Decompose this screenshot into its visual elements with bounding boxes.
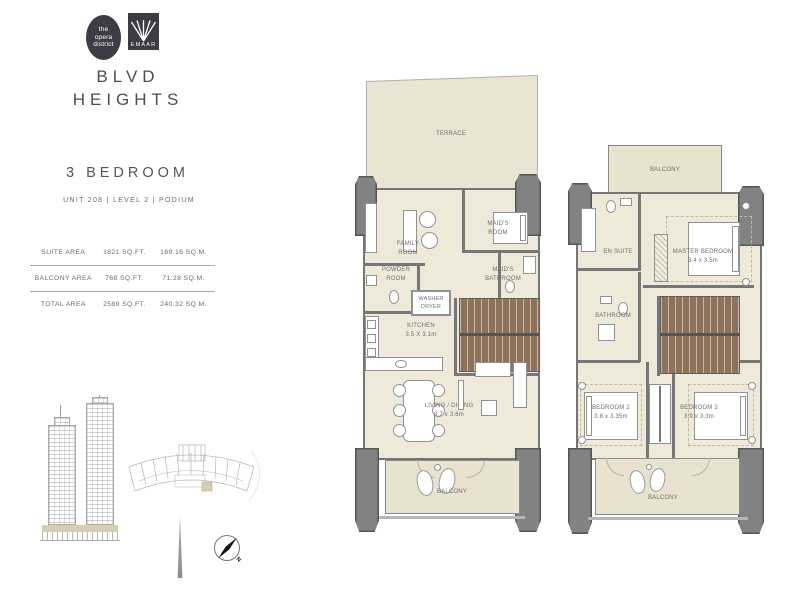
area-row-label: SUITE AREA <box>30 249 97 256</box>
en-suite-label: EN SUITE <box>590 248 646 257</box>
chair-icon <box>432 424 445 437</box>
nightstand-icon <box>742 202 750 210</box>
toilet-icon <box>606 200 616 213</box>
master-bedroom-label: MASTER BEDROOM 3.4 x 3.5m <box>672 248 734 266</box>
tower-right <box>86 403 114 525</box>
bathtub-icon <box>581 208 596 252</box>
emaar-sunburst-icon <box>130 20 157 42</box>
project-title: BLVD HEIGHTS <box>53 66 203 112</box>
balcony-bottom-label: BALCONY <box>628 494 698 503</box>
project-title-line2: HEIGHTS <box>53 89 203 112</box>
area-row-label: BALCONY AREA <box>30 275 97 282</box>
shower-icon <box>598 324 615 341</box>
wall <box>462 250 540 253</box>
area-row-sqft: 1821 SQ.FT. <box>97 249 153 256</box>
living-dining-label: LIVING / DINING 8.7 x 3.6m <box>421 402 477 420</box>
area-row-label: TOTAL AREA <box>30 301 97 308</box>
coffee-table-icon <box>481 400 497 416</box>
podium-level-highlight <box>42 525 118 532</box>
sink-icon <box>600 296 612 304</box>
chair-icon <box>432 384 445 397</box>
wardrobe-icon <box>654 234 668 282</box>
nightstand-icon <box>742 278 750 286</box>
chair-icon <box>419 211 436 228</box>
compass-icon: N <box>212 533 246 569</box>
podium-columns <box>42 532 118 540</box>
emaar-logo-label: EMAAR <box>131 42 157 48</box>
balcony-railing <box>379 516 525 519</box>
tower-left <box>48 425 76 525</box>
area-table: SUITE AREA 1821 SQ.FT. 169.16 SQ.M. BALC… <box>30 240 215 317</box>
brochure-page: the opera district EMAAR BLVD HEIGHTS 3 … <box>0 0 800 600</box>
nightstand-icon <box>748 436 756 444</box>
wall <box>643 285 754 288</box>
unit-type-heading: 3 BEDROOM <box>35 165 220 181</box>
area-row-sqm: 240.32 SQ.M. <box>152 301 215 308</box>
kitchen-label: KITCHEN 3.5 X 3.1m <box>393 322 449 340</box>
area-row-sqft: 2589 SQ.FT. <box>97 301 153 308</box>
wall <box>462 190 465 252</box>
ground-line <box>40 540 120 541</box>
unit-info-line: UNIT 208 | LEVEL 2 | PODIUM <box>35 197 223 204</box>
powder-room-label: POWDER ROOM <box>371 266 421 284</box>
antenna-line <box>60 405 61 417</box>
closet-divider <box>659 386 661 442</box>
side-table-icon <box>646 464 652 470</box>
balcony-top-label: BALCONY <box>635 166 695 175</box>
project-title-line1: BLVD <box>53 66 203 89</box>
hob-icon <box>367 334 376 343</box>
opera-logo-line3: district <box>93 41 113 48</box>
balcony-railing <box>588 517 748 520</box>
chair-icon <box>393 404 406 417</box>
emaar-logo: EMAAR <box>128 13 159 50</box>
pillow-icon <box>740 396 746 436</box>
maids-bathroom-label: MAID'S BATHROOM <box>477 266 529 284</box>
wall <box>454 298 457 376</box>
opera-district-logo: the opera district <box>86 15 121 60</box>
chair-icon <box>393 424 406 437</box>
area-row-sqft: 768 SQ.FT. <box>97 275 153 282</box>
column-pylon <box>568 448 592 534</box>
floorplan-upper-level: BALCONY EN SUITE MASTER BEDROOM 3.4 x 3.… <box>568 138 768 536</box>
sofa-icon <box>513 362 527 408</box>
family-room-label: FAMILY ROOM <box>383 240 433 258</box>
nightstand-icon <box>578 436 586 444</box>
kitchen-sink-icon <box>395 360 407 368</box>
area-row-sqm: 169.16 SQ.M. <box>152 249 215 256</box>
tv-console-icon <box>458 380 464 410</box>
area-row-sqm: 71.28 SQ.M. <box>152 275 215 282</box>
sink-icon <box>620 198 632 206</box>
table-row: BALCONY AREA 768 SQ.FT. 71.28 SQ.M. <box>30 265 215 291</box>
chair-icon <box>393 384 406 397</box>
floorplan-lower-level: TERRACE FAMILY ROOM MAID'S ROOM MAID'S B… <box>355 70 550 535</box>
bathroom-label: BATHROOM <box>585 312 641 321</box>
nightstand-icon <box>748 382 756 390</box>
terrace-label: TERRACE <box>401 130 501 139</box>
unit-location-highlight <box>202 482 212 491</box>
sofa-icon <box>475 362 511 377</box>
wall <box>576 268 640 271</box>
bedroom-3-label: BEDROOM 3 3.9 x 3.3m <box>674 404 724 422</box>
hob-icon <box>367 320 376 329</box>
table-row: SUITE AREA 1821 SQ.FT. 169.16 SQ.M. <box>30 240 215 265</box>
table-row: TOTAL AREA 2589 SQ.FT. 240.32 SQ.M. <box>30 291 215 317</box>
wall <box>638 194 641 271</box>
washer-dryer-label: WASHER DRYER <box>411 295 451 312</box>
opera-logo-line1: the <box>99 26 109 33</box>
wall <box>576 360 640 363</box>
bedroom-2-label: BEDROOM 2 3.8 x 3.35m <box>586 404 636 422</box>
nightstand-icon <box>578 382 586 390</box>
balcony-label: BALCONY <box>417 488 487 497</box>
stair-landing-rail <box>459 333 540 336</box>
building-elevation-key <box>40 393 125 545</box>
sink-icon <box>367 348 376 357</box>
burj-khalifa-icon <box>170 516 190 578</box>
stair-landing-rail <box>660 333 740 336</box>
side-table-icon <box>434 464 441 471</box>
site-key-plan <box>123 433 261 515</box>
column-pylon <box>738 448 764 534</box>
toilet-icon <box>389 290 399 304</box>
maids-room-label: MAID'S ROOM <box>473 220 523 238</box>
site-boundary-arc <box>249 451 260 501</box>
sofa-icon <box>365 203 377 253</box>
column-pylon <box>355 448 379 532</box>
opera-logo-line2: opera <box>95 34 113 41</box>
